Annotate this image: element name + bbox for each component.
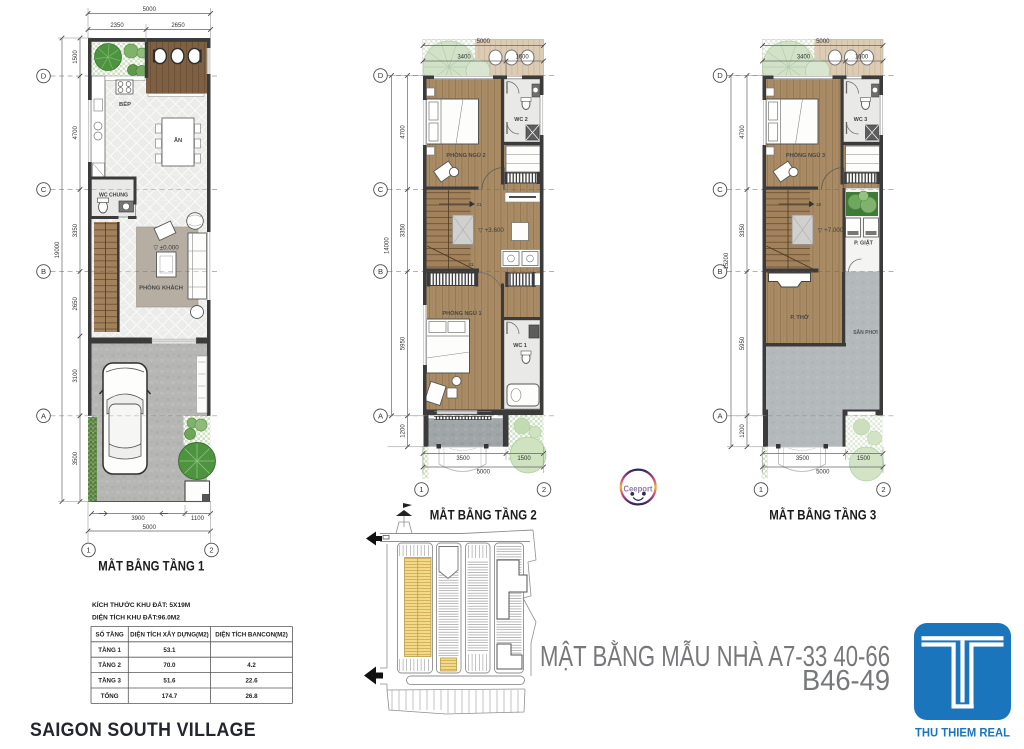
svg-text:C: C xyxy=(41,185,47,194)
svg-text:▽ +3.600: ▽ +3.600 xyxy=(478,227,504,234)
svg-text:SAIGON SOUTH VILLAGE: SAIGON SOUTH VILLAGE xyxy=(30,719,256,741)
svg-text:2650: 2650 xyxy=(73,296,79,310)
svg-text:DIỆN TÍCH XÂY DỰNG(M2): DIỆN TÍCH XÂY DỰNG(M2) xyxy=(130,630,209,638)
svg-text:2: 2 xyxy=(542,485,546,494)
svg-text:B46-49: B46-49 xyxy=(802,665,890,697)
svg-text:2: 2 xyxy=(209,546,213,555)
svg-text:PHÒNG NGỦ 3: PHÒNG NGỦ 3 xyxy=(786,151,825,159)
svg-text:4700: 4700 xyxy=(73,125,79,139)
svg-text:5950: 5950 xyxy=(401,336,407,350)
svg-text:3350: 3350 xyxy=(401,223,407,237)
svg-text:5000: 5000 xyxy=(816,39,830,45)
svg-text:4700: 4700 xyxy=(401,125,407,139)
svg-text:19000: 19000 xyxy=(55,241,61,258)
svg-text:22.6: 22.6 xyxy=(245,678,258,685)
svg-text:ĂN: ĂN xyxy=(174,137,182,144)
svg-text:5000: 5000 xyxy=(143,7,157,13)
svg-text:1100: 1100 xyxy=(191,516,205,522)
svg-text:WC 3: WC 3 xyxy=(854,117,867,123)
svg-text:4.2: 4.2 xyxy=(247,662,256,669)
svg-text:1200: 1200 xyxy=(740,424,746,438)
svg-text:1200: 1200 xyxy=(401,424,407,438)
svg-text:▽ +7.000: ▽ +7.000 xyxy=(818,227,844,234)
svg-text:51.6: 51.6 xyxy=(163,678,176,685)
svg-text:PHÒNG NGỦ 2: PHÒNG NGỦ 2 xyxy=(446,151,485,159)
svg-text:18: 18 xyxy=(816,202,822,207)
svg-text:TẦNG 1: TẦNG 1 xyxy=(98,647,121,654)
svg-text:21: 21 xyxy=(476,202,482,207)
svg-text:3350: 3350 xyxy=(740,223,746,237)
svg-text:3350: 3350 xyxy=(73,223,79,237)
svg-text:5000: 5000 xyxy=(477,39,491,45)
svg-text:B: B xyxy=(41,267,46,276)
svg-text:PHÒNG KHÁCH: PHÒNG KHÁCH xyxy=(139,284,183,292)
svg-text:3400: 3400 xyxy=(797,54,811,60)
svg-text:D: D xyxy=(717,71,723,80)
svg-text:MẰT BẰNG TẦNG 2: MẰT BẰNG TẦNG 2 xyxy=(430,506,537,523)
svg-text:TỔNG: TỔNG xyxy=(101,693,119,700)
svg-text:01: 01 xyxy=(468,262,474,267)
svg-text:WC 1: WC 1 xyxy=(513,343,526,349)
svg-text:1600: 1600 xyxy=(855,54,869,60)
svg-text:WC 2: WC 2 xyxy=(514,117,527,123)
svg-text:5000: 5000 xyxy=(477,469,491,475)
svg-text:TẦNG 3: TẦNG 3 xyxy=(98,678,121,685)
svg-text:14000: 14000 xyxy=(385,237,391,254)
svg-text:2: 2 xyxy=(881,485,885,494)
svg-text:26.8: 26.8 xyxy=(245,693,258,700)
svg-text:B: B xyxy=(378,267,383,276)
svg-text:174.7: 174.7 xyxy=(162,693,178,700)
svg-text:3500: 3500 xyxy=(456,456,470,462)
svg-text:5000: 5000 xyxy=(816,469,830,475)
svg-text:1: 1 xyxy=(86,546,90,555)
svg-text:P. THỜ: P. THỜ xyxy=(790,313,809,321)
svg-text:MẰT BẰNG TẦNG 3: MẰT BẰNG TẦNG 3 xyxy=(769,506,876,523)
svg-text:P. GIẶT: P. GIẶT xyxy=(854,240,873,247)
svg-text:1500: 1500 xyxy=(517,456,531,462)
svg-text:2350: 2350 xyxy=(110,23,124,29)
svg-text:70.0: 70.0 xyxy=(163,662,176,669)
svg-text:4700: 4700 xyxy=(740,125,746,139)
svg-text:C: C xyxy=(717,185,723,194)
svg-text:1: 1 xyxy=(419,485,423,494)
svg-text:PHÒNG NGỦ 1: PHÒNG NGỦ 1 xyxy=(442,309,481,317)
svg-text:1500: 1500 xyxy=(73,50,79,64)
svg-text:MẰT BẰNG TẦNG 1: MẰT BẰNG TẦNG 1 xyxy=(98,557,204,574)
svg-text:3900: 3900 xyxy=(131,516,145,522)
svg-text:15200: 15200 xyxy=(724,252,730,269)
svg-text:5950: 5950 xyxy=(740,336,746,350)
svg-text:SÂN PHƠI: SÂN PHƠI xyxy=(853,329,878,336)
svg-text:1600: 1600 xyxy=(515,54,529,60)
svg-text:DIỆN TÍCH BANCON(M2): DIỆN TÍCH BANCON(M2) xyxy=(215,630,288,638)
svg-text:1500: 1500 xyxy=(857,456,871,462)
svg-text:1: 1 xyxy=(759,485,763,494)
svg-text:3100: 3100 xyxy=(73,369,79,383)
svg-text:D: D xyxy=(378,71,384,80)
svg-text:5000: 5000 xyxy=(143,525,157,531)
svg-text:THU THIEM REAL: THU THIEM REAL xyxy=(915,726,1011,740)
svg-text:3500: 3500 xyxy=(796,456,810,462)
svg-text:Ceeport: Ceeport xyxy=(624,484,653,494)
svg-text:2650: 2650 xyxy=(171,23,185,29)
svg-text:B: B xyxy=(717,267,722,276)
svg-text:C: C xyxy=(378,185,384,194)
svg-text:▽ ±0.000: ▽ ±0.000 xyxy=(153,245,179,252)
svg-text:3500: 3500 xyxy=(73,451,79,465)
svg-text:TẦNG 2: TẦNG 2 xyxy=(98,662,121,669)
svg-text:SỐ TẦNG: SỐ TẦNG xyxy=(96,631,124,638)
svg-text:53.1: 53.1 xyxy=(163,647,176,654)
svg-text:BẾP: BẾP xyxy=(119,101,131,108)
svg-text:WC CHUNG: WC CHUNG xyxy=(99,193,128,199)
svg-text:3400: 3400 xyxy=(457,54,471,60)
svg-text:D: D xyxy=(41,72,47,81)
